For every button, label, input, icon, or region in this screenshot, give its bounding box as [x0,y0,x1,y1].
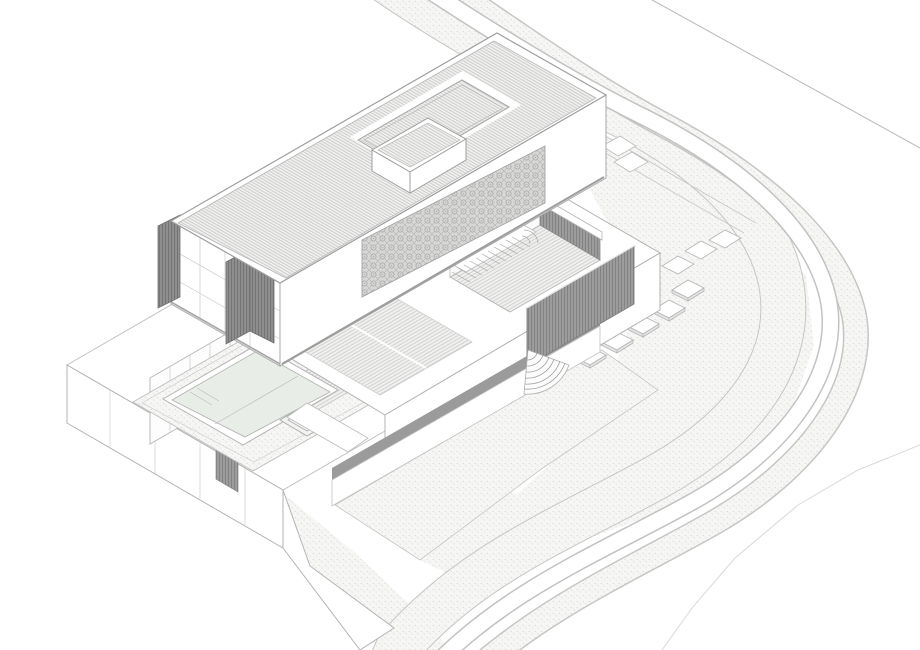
louver-shutter [158,215,180,308]
axonometric-house-drawing [0,0,920,650]
drawing-page [0,0,920,650]
